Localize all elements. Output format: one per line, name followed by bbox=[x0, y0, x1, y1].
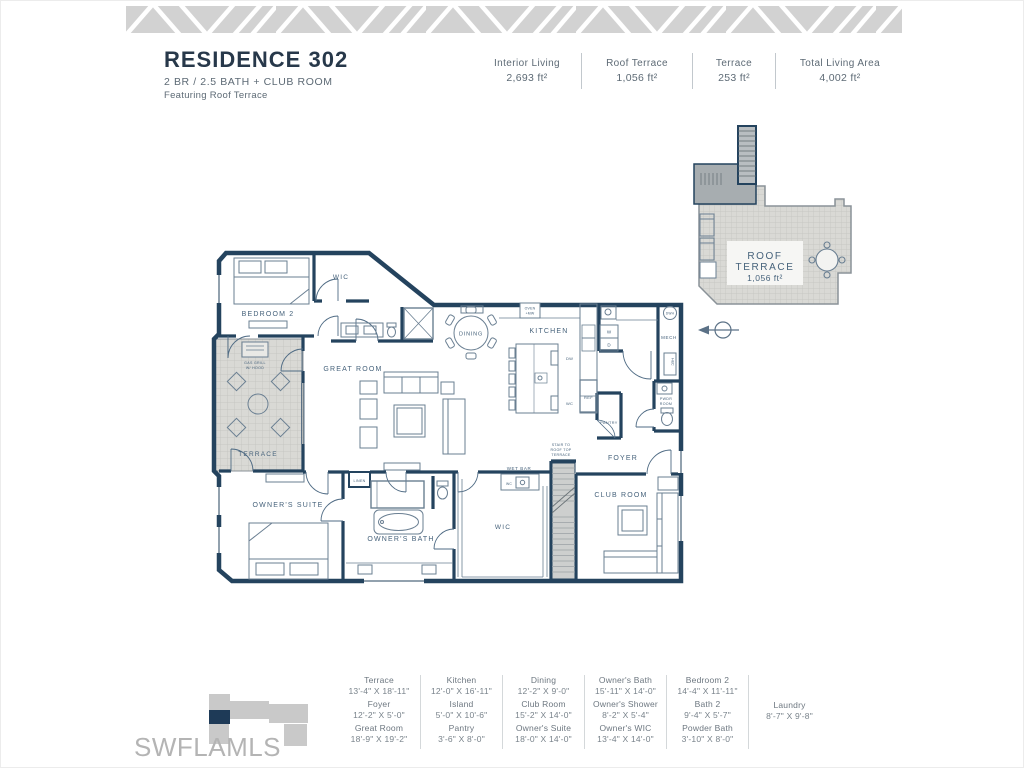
roof-terrace-area: 1,056 ft² bbox=[747, 273, 783, 283]
label-island-wc: WC bbox=[566, 401, 573, 406]
title-block: RESIDENCE 302 2 BR / 2.5 BATH + CLUB ROO… bbox=[164, 47, 348, 101]
dim-item: Great Room18'-9" X 19'-2" bbox=[338, 723, 420, 744]
label-pwdr-2: ROOM bbox=[660, 402, 672, 406]
label-owners-wic: WIC bbox=[495, 524, 511, 531]
page-subtitle: 2 BR / 2.5 BATH + CLUB ROOM bbox=[164, 76, 348, 88]
dim-item: Owner's Suite18'-0" X 14'-0" bbox=[503, 723, 584, 744]
label-gas-grill-2: W/ HOOD bbox=[246, 366, 264, 370]
label-pantry: PANTRY bbox=[600, 421, 618, 425]
stat-interior-living: Interior Living 2,693 ft² bbox=[479, 58, 575, 84]
label-stair-2: ROOF TOP bbox=[550, 448, 571, 452]
dim-item: Dining12'-2" X 9'-0" bbox=[503, 675, 584, 696]
label-wet-bar: WET BAR bbox=[507, 466, 532, 471]
label-dining: DINING bbox=[459, 332, 483, 338]
dims-column-3: Dining12'-2" X 9'-0" Club Room15'-2" X 1… bbox=[502, 675, 584, 749]
stat-value: 253 ft² bbox=[703, 72, 765, 84]
area-stats: Interior Living 2,693 ft² Roof Terrace 1… bbox=[479, 53, 898, 89]
owners-suite-furniture bbox=[249, 474, 328, 579]
stat-value: 1,056 ft² bbox=[592, 72, 682, 84]
chevron-band bbox=[126, 6, 902, 33]
dim-item: Terrace13'-4" X 18'-11" bbox=[338, 675, 420, 696]
dims-column-1: Terrace13'-4" X 18'-11" Foyer12'-2" X 5'… bbox=[338, 675, 420, 749]
stat-label: Roof Terrace bbox=[592, 58, 682, 69]
kitchen-fixtures bbox=[499, 303, 597, 413]
stat-roof-terrace: Roof Terrace 1,056 ft² bbox=[588, 58, 686, 84]
label-pwdr-1: PWDR bbox=[660, 397, 672, 401]
dimensions-table: Terrace13'-4" X 18'-11" Foyer12'-2" X 5'… bbox=[338, 675, 830, 749]
label-ref: REF bbox=[584, 395, 593, 400]
main-floor-plan: BEDROOM 2 WIC GREAT ROOM DINING KITCHEN … bbox=[206, 241, 751, 586]
stat-divider bbox=[581, 53, 582, 89]
dim-item: Owner's WIC13'-4" X 14'-0" bbox=[585, 723, 666, 744]
stat-label: Terrace bbox=[703, 58, 765, 69]
dims-column-6: Laundry8'-7" X 9'-8" bbox=[748, 675, 830, 749]
label-mech: MECH bbox=[661, 335, 677, 340]
label-dryer: D bbox=[607, 343, 611, 348]
label-stair-1: STAIR TO bbox=[552, 443, 571, 447]
label-stair-3: TERRACE bbox=[551, 453, 571, 457]
stat-label: Total Living Area bbox=[786, 58, 894, 69]
dim-item: Club Room15'-2" X 14'-0" bbox=[503, 699, 584, 720]
label-washer: W bbox=[607, 330, 612, 335]
stat-value: 2,693 ft² bbox=[483, 72, 571, 84]
keyplan-block bbox=[284, 724, 307, 746]
stairs-to-roof bbox=[552, 463, 575, 579]
page-title: RESIDENCE 302 bbox=[164, 47, 348, 73]
dims-column-2: Kitchen12'-0" X 16'-11" Island5'-0" X 10… bbox=[420, 675, 502, 749]
stat-value: 4,002 ft² bbox=[786, 72, 894, 84]
label-terrace: TERRACE bbox=[238, 451, 277, 458]
label-oven-2: +MW bbox=[526, 312, 535, 316]
label-dw: DW bbox=[566, 356, 573, 361]
page-tagline: Featuring Roof Terrace bbox=[164, 90, 348, 101]
keyplan-block bbox=[230, 701, 269, 719]
label-hc: H&C bbox=[671, 358, 675, 366]
dim-item: Powder Bath3'-10" X 8'-0" bbox=[667, 723, 748, 744]
label-linen: LINEN bbox=[353, 479, 365, 483]
dim-item: Bath 29'-4" X 5'-7" bbox=[667, 699, 748, 720]
laundry-mech-powder-fixtures bbox=[600, 306, 677, 426]
dim-item: Kitchen12'-0" X 16'-11" bbox=[421, 675, 502, 696]
dims-column-5: Bedroom 214'-4" X 11'-11" Bath 29'-4" X … bbox=[666, 675, 748, 749]
dims-column-4: Owner's Bath15'-11" X 14'-0" Owner's Sho… bbox=[584, 675, 666, 749]
owners-bath-fixtures bbox=[346, 481, 453, 574]
label-owners-bath: OWNER'S BATH bbox=[367, 536, 434, 543]
label-foyer: FOYER bbox=[608, 455, 638, 462]
stat-total-living: Total Living Area 4,002 ft² bbox=[782, 58, 898, 84]
dim-item: Pantry3'-6" X 8'-0" bbox=[421, 723, 502, 744]
stat-label: Interior Living bbox=[483, 58, 571, 69]
dim-item: Island5'-0" X 10'-6" bbox=[421, 699, 502, 720]
label-bedroom2: BEDROOM 2 bbox=[242, 311, 295, 318]
stat-terrace: Terrace 253 ft² bbox=[699, 58, 769, 84]
label-oven-1: OVEN bbox=[525, 307, 536, 311]
roof-stair-tower bbox=[738, 126, 756, 184]
dim-item: Bedroom 214'-4" X 11'-11" bbox=[667, 675, 748, 696]
label-gas-grill-1: GAS GRILL bbox=[244, 361, 266, 365]
stat-divider bbox=[692, 53, 693, 89]
keyplan-highlighted-unit bbox=[209, 710, 230, 724]
roof-terrace-label-1: ROOF bbox=[747, 251, 782, 262]
dim-item: Owner's Shower8'-2" X 5'-4" bbox=[585, 699, 666, 720]
mls-watermark: SWFLAMLS bbox=[134, 732, 281, 763]
keyplan-block bbox=[269, 704, 308, 723]
dim-item: Foyer12'-2" X 5'-0" bbox=[338, 699, 420, 720]
keyplan-block bbox=[209, 694, 230, 711]
bath2-fixtures bbox=[341, 308, 433, 339]
label-wic-bedroom2: WIC bbox=[333, 274, 349, 281]
label-kitchen: KITCHEN bbox=[529, 328, 568, 335]
stat-divider bbox=[775, 53, 776, 89]
dim-item: Owner's Bath15'-11" X 14'-0" bbox=[585, 675, 666, 696]
compass-icon bbox=[698, 322, 739, 338]
label-wet-bar-wc: WC bbox=[506, 482, 512, 486]
floorplan-sheet: RESIDENCE 302 2 BR / 2.5 BATH + CLUB ROO… bbox=[0, 0, 1024, 768]
label-great-room: GREAT ROOM bbox=[323, 366, 382, 373]
label-owners-suite: OWNER'S SUITE bbox=[253, 502, 324, 509]
dim-item: Laundry8'-7" X 9'-8" bbox=[749, 700, 830, 721]
label-dwh: DWH bbox=[666, 312, 675, 316]
label-club-room: CLUB ROOM bbox=[594, 492, 647, 499]
